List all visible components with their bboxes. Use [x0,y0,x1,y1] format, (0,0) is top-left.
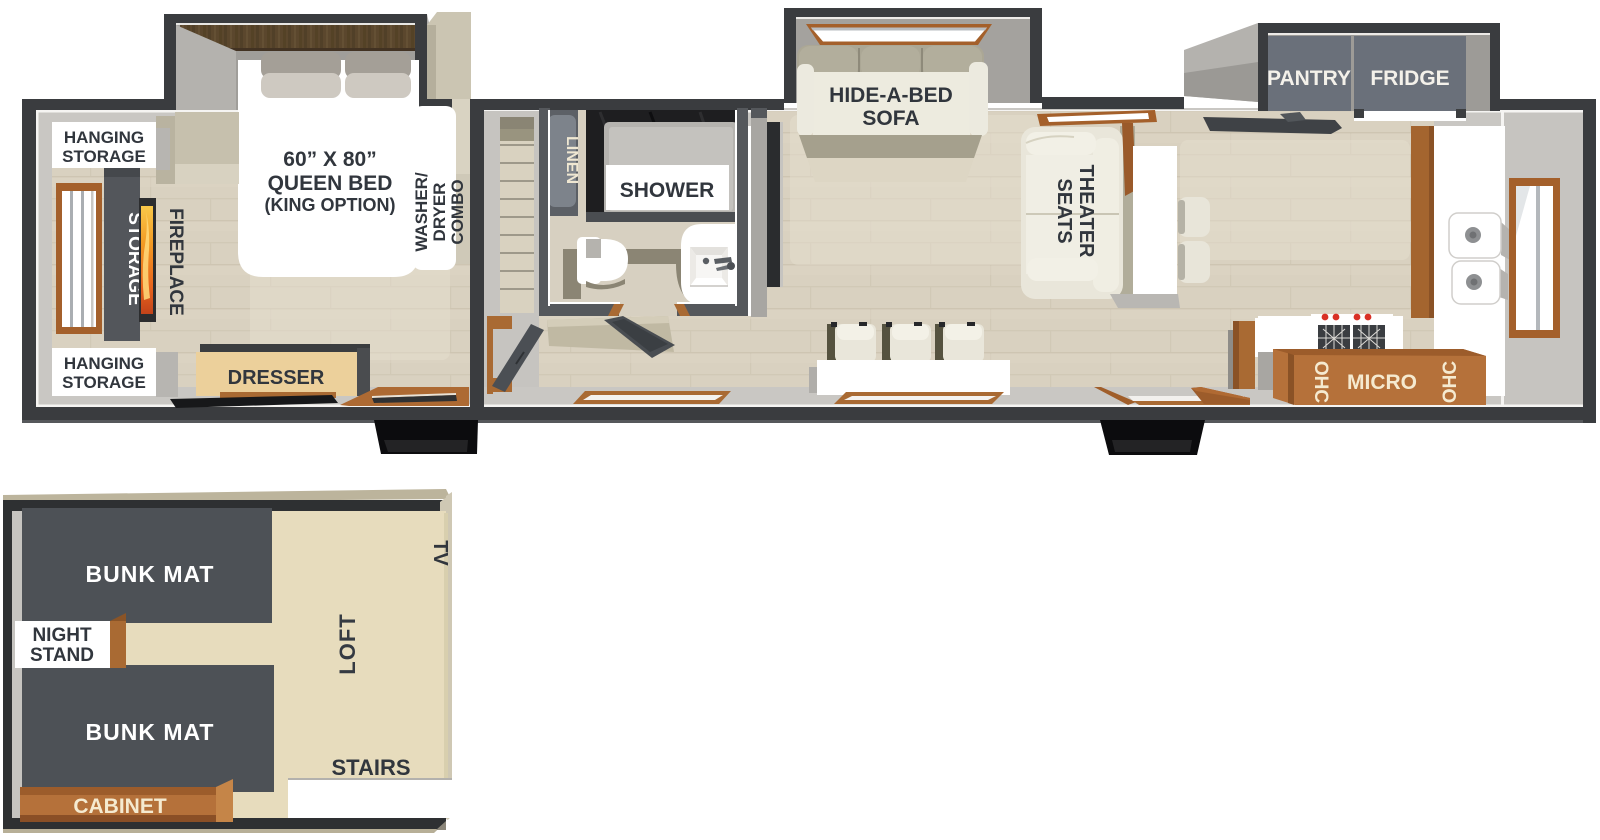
svg-text:LINEN: LINEN [563,136,580,184]
svg-text:NIGHT: NIGHT [32,625,92,646]
svg-text:FRIDGE: FRIDGE [1370,67,1449,90]
svg-text:OHC: OHC [1440,361,1461,404]
svg-text:THEATER: THEATER [1075,165,1097,259]
svg-text:DRYER: DRYER [430,183,449,242]
svg-text:FIREPLACE: FIREPLACE [165,208,186,316]
svg-text:HANGING: HANGING [64,128,144,147]
svg-text:SEATS: SEATS [1053,178,1075,243]
svg-text:WASHER/: WASHER/ [412,172,431,252]
svg-text:DRESSER: DRESSER [228,367,325,389]
svg-text:QUEEN BED: QUEEN BED [268,172,393,195]
svg-text:STORAGE: STORAGE [62,147,146,166]
svg-text:BUNK MAT: BUNK MAT [86,719,215,745]
svg-text:HANGING: HANGING [64,354,144,373]
svg-text:OHC: OHC [1310,361,1331,404]
svg-text:COMBO: COMBO [448,179,467,244]
svg-text:(KING OPTION): (KING OPTION) [265,195,396,215]
svg-text:60” X 80”: 60” X 80” [283,148,376,171]
svg-text:STAND: STAND [30,645,94,666]
svg-text:CABINET: CABINET [73,795,167,818]
svg-text:STAIRS: STAIRS [331,755,410,780]
svg-text:TV: TV [429,540,451,566]
svg-text:SOFA: SOFA [862,107,919,130]
svg-text:MICRO: MICRO [1347,371,1417,394]
svg-text:BUNK MAT: BUNK MAT [86,561,215,587]
svg-text:SHOWER: SHOWER [620,179,715,202]
svg-text:LOFT: LOFT [335,613,360,674]
svg-text:STORAGE: STORAGE [62,373,146,392]
svg-text:PANTRY: PANTRY [1267,67,1351,90]
svg-text:HIDE-A-BED: HIDE-A-BED [829,84,953,107]
